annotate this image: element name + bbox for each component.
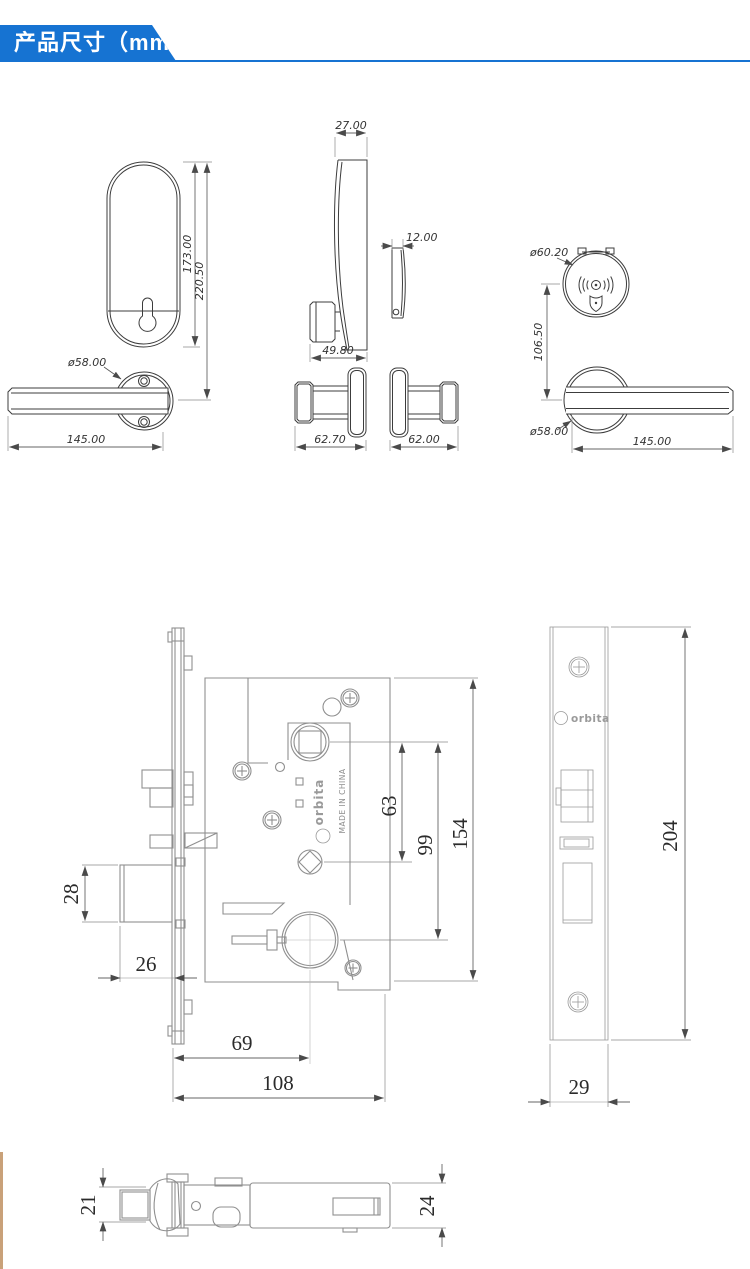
reader-front-view: ø60.20 106.50 xyxy=(529,246,629,400)
dim-front-backset: 26 xyxy=(136,952,157,976)
screw xyxy=(345,960,361,976)
dim-escutcheon-total: 220.50 xyxy=(193,262,206,301)
screw xyxy=(569,657,589,677)
latch-head xyxy=(120,1190,150,1220)
dim-hub-spacing: 63 xyxy=(377,796,401,817)
brand-logo-mark xyxy=(555,712,568,725)
dim-plate-height: 204 xyxy=(658,820,682,852)
edge-stripe xyxy=(0,1152,3,1269)
plate-brand-text: orbita xyxy=(571,713,610,725)
screw-hole xyxy=(139,417,150,428)
interior-handle-view: ø58.00 145.00 xyxy=(529,367,733,453)
aux-hub xyxy=(298,850,322,874)
origin-text: MADE IN CHINA xyxy=(338,768,347,833)
screw xyxy=(263,811,281,829)
thumb-knob xyxy=(310,302,335,342)
thin-side-view: 12.00 xyxy=(381,231,438,318)
label-ext-rose-diameter: ø58.00 xyxy=(67,356,106,369)
mortise-lock-body-view: orbita MADE IN CHINA xyxy=(59,628,478,1102)
body-brand-text: orbita xyxy=(312,779,326,826)
faceplate-front-view: orbita 204 29 xyxy=(528,627,691,1107)
screw xyxy=(341,689,359,707)
latch-bolt xyxy=(142,770,173,788)
keyhole-icon xyxy=(139,298,156,331)
exterior-side-view: 27.00 49.80 xyxy=(310,119,367,362)
handle-side-view-right: 62.00 xyxy=(390,368,458,451)
lever-bar xyxy=(8,388,168,414)
signal-icon xyxy=(579,277,613,312)
dim-body-width: 108 xyxy=(262,1071,294,1095)
dim-case-height: 24 xyxy=(415,1195,439,1217)
product-dimensions-page: 产品尺寸（mm） 173.00 220.50 xyxy=(0,0,750,1269)
dim-deadbolt-height: 28 xyxy=(59,884,83,905)
screw xyxy=(233,762,251,780)
dim-side-width: 27.00 xyxy=(335,119,367,132)
handle-side-view-left: 62.70 xyxy=(295,368,366,451)
exterior-handle-view: ø58.00 145.00 xyxy=(8,356,211,451)
technical-drawing: 173.00 220.50 ø58.00 145.00 xyxy=(0,0,750,1269)
dim-latch-height: 21 xyxy=(76,1195,100,1216)
dim-plate-width: 29 xyxy=(569,1075,590,1099)
lock-top-view: 21 24 xyxy=(76,1164,446,1247)
spindle-hole xyxy=(299,731,321,753)
brand-logo-mark xyxy=(316,829,330,843)
screw-hole xyxy=(139,376,150,387)
deadbolt xyxy=(120,865,172,922)
lock-case xyxy=(250,1183,390,1228)
dim-side-left-depth: 62.70 xyxy=(314,433,346,446)
dim-int-handle-length: 145.00 xyxy=(633,435,672,448)
dim-side-depth: 49.80 xyxy=(322,344,354,357)
key-shaft xyxy=(232,936,267,944)
dim-cylinder-backset: 69 xyxy=(232,1031,253,1055)
deadbolt-cutout xyxy=(563,863,592,923)
dim-hub-cylinder: 99 xyxy=(413,835,437,856)
dim-ext-handle-length: 145.00 xyxy=(67,433,106,446)
screw xyxy=(568,992,588,1012)
dim-side-right-depth: 62.00 xyxy=(408,433,440,446)
dim-thin-width: 12.00 xyxy=(406,231,438,244)
dim-body-height: 154 xyxy=(448,818,472,850)
dim-reader-offset: 106.50 xyxy=(532,323,545,362)
escutcheon-front-view: 173.00 220.50 xyxy=(107,162,212,399)
aux-bolt xyxy=(150,835,173,848)
label-reader-diameter: ø60.20 xyxy=(529,246,568,259)
